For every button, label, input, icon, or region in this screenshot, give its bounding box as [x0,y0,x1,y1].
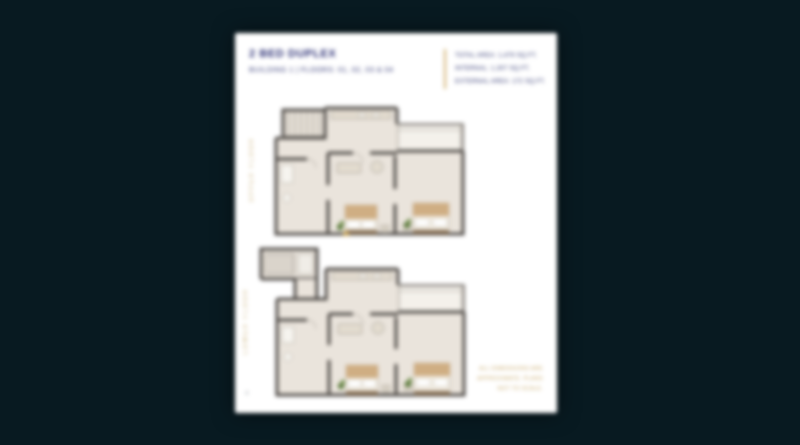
disclaimer-line: APPROXIMATE. PLANS [477,374,543,384]
disclaimer-line: ALL DIMENSIONS ARE [477,364,543,374]
area-line-internal: INTERNAL: 1,307 SQ.FT. [455,62,545,75]
brochure-page: 2 BED DUPLEX BUILDING 1 | FLOORS: 01, 02… [235,33,557,413]
page-subtitle: BUILDING 1 | FLOORS: 01, 02, 03 & 04 [249,65,442,74]
upper-floor-label: UPPER FLOOR [249,137,261,202]
kitchen-counter [332,272,392,280]
page-title: 2 BED DUPLEX [249,48,442,60]
bed-icon [346,365,378,395]
upper-floor-plan [261,103,466,237]
gold-divider [444,49,446,89]
lower-floor-label: LOWER FLOOR [243,288,255,354]
entry-arrow-icon [342,229,350,236]
page-header: 2 BED DUPLEX BUILDING 1 | FLOORS: 01, 02… [249,48,547,89]
area-line-external: EXTERNAL AREA: 172 SQ.FT. [455,75,545,88]
page-number: 4 [245,390,249,397]
viewport: { "page": { "background_color": "#081a21… [0,0,800,445]
dining-table [372,322,384,334]
stairs-icon [283,110,325,136]
bed-icon [413,203,449,234]
lower-floor-plan [255,245,467,397]
area-summary: TOTAL AREA: 1,479 SQ.FT. INTERNAL: 1,307… [455,48,545,88]
nightstand [382,385,390,393]
disclaimer-line: NOT TO SCALE. [477,384,543,394]
balcony [399,286,462,312]
nightstand [381,225,389,233]
dining-table [371,161,383,173]
upper-floor-plan-block: UPPER FLOOR [249,103,466,237]
sofa [338,324,362,334]
area-line-total: TOTAL AREA: 1,479 SQ.FT. [455,49,545,62]
balcony [398,125,461,151]
header-title-block: 2 BED DUPLEX BUILDING 1 | FLOORS: 01, 02… [249,48,442,74]
kitchen-counter [331,111,391,119]
stairs-icon [261,249,317,299]
sofa [337,163,361,173]
disclaimer-note: ALL DIMENSIONS ARE APPROXIMATE. PLANS NO… [477,364,543,394]
bed-icon [414,363,450,395]
lower-floor-plan-block: LOWER FLOOR [243,245,467,397]
